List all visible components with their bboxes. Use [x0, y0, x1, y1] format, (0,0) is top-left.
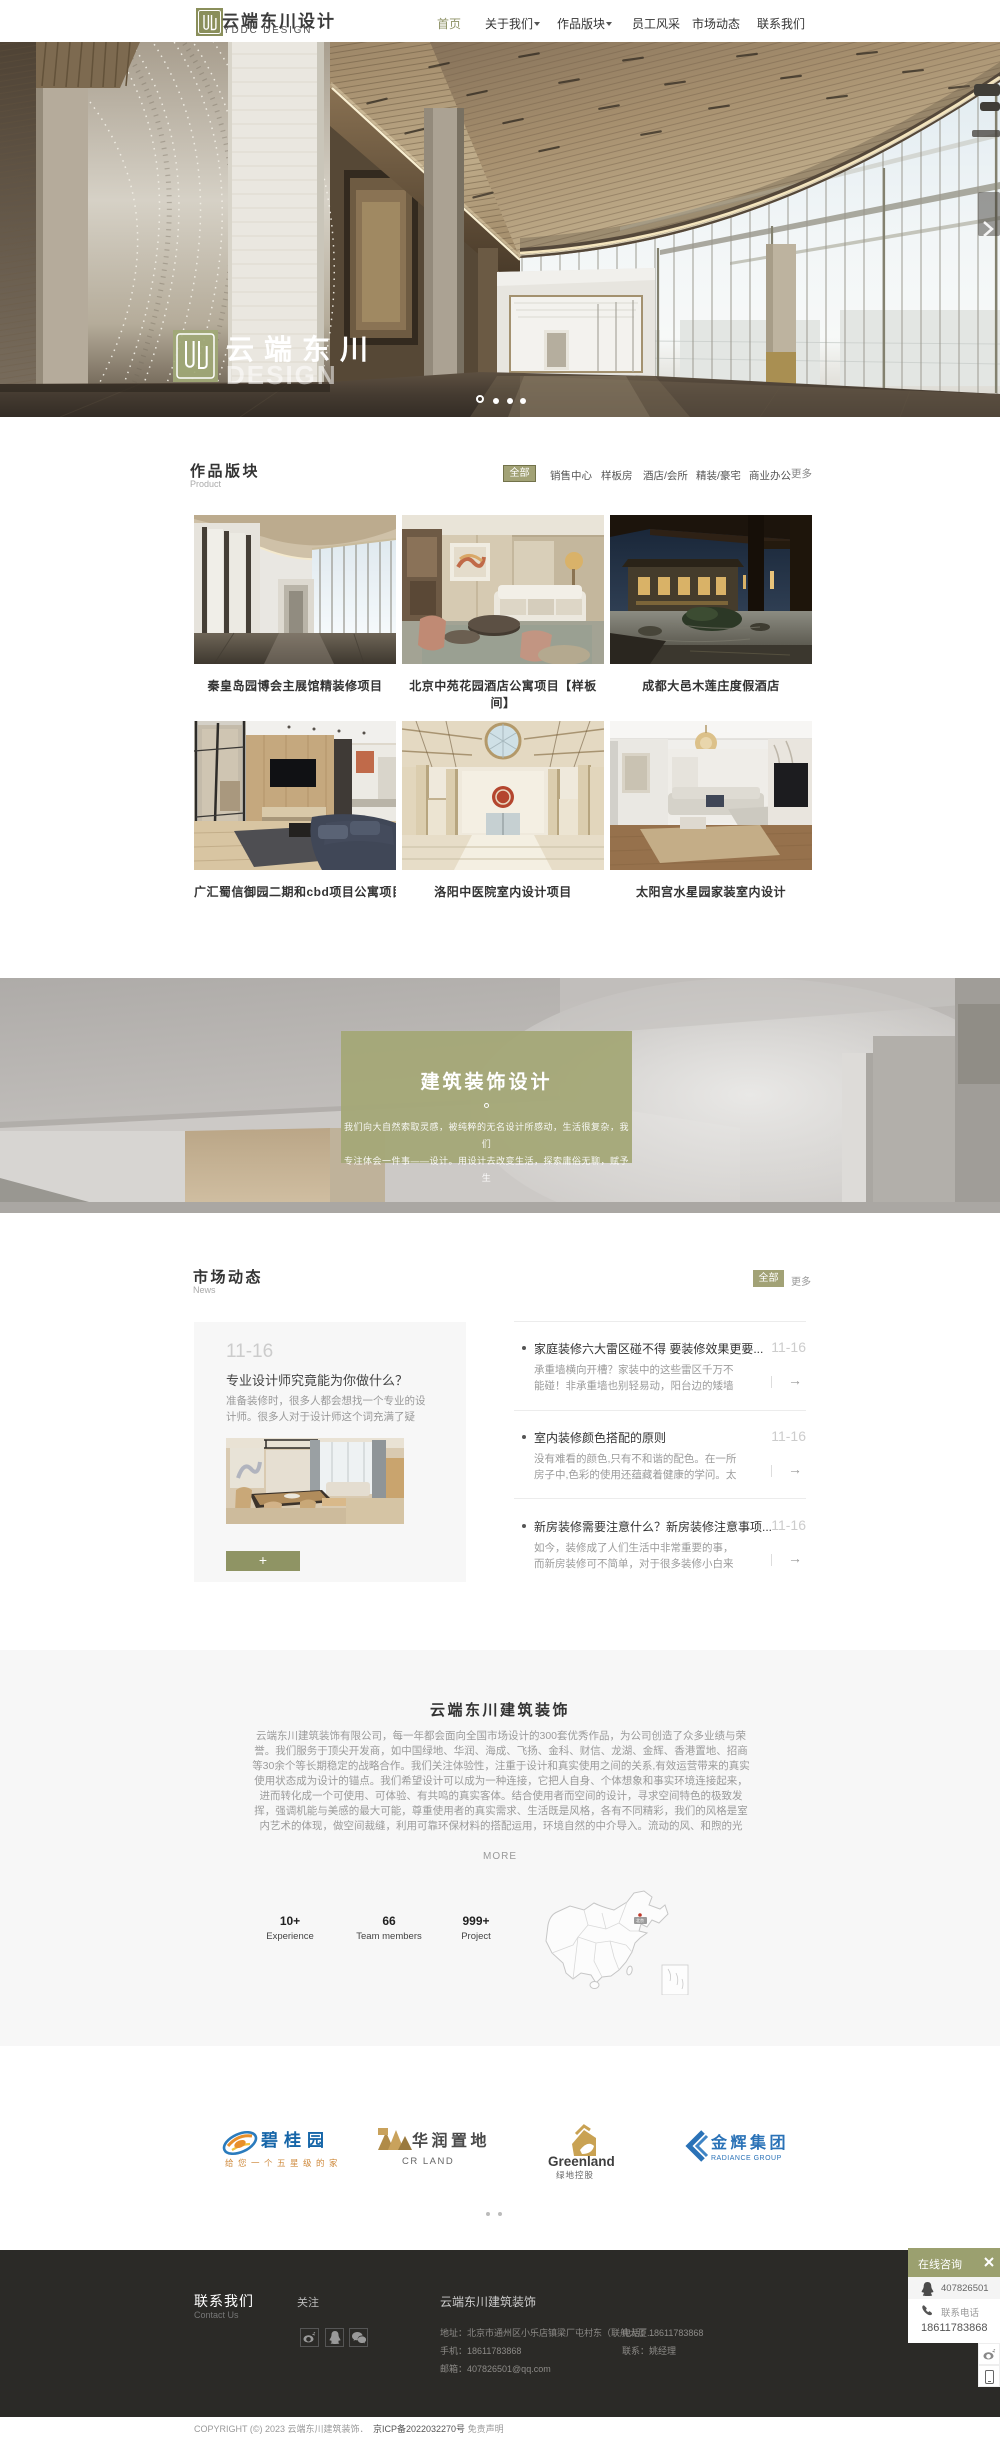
svg-text:绿地控股: 绿地控股: [556, 2170, 594, 2180]
svg-text:北京: 北京: [636, 1917, 644, 1923]
svg-text:金辉集团: 金辉集团: [710, 2133, 789, 2152]
svg-text:Greenland: Greenland: [548, 2154, 615, 2169]
svg-text:RADIANCE GROUP: RADIANCE GROUP: [711, 2155, 782, 2162]
svg-text:碧桂园: 碧桂园: [260, 2130, 330, 2150]
svg-text:给您一个五星级的家: 给您一个五星级的家: [225, 2158, 342, 2168]
svg-text:CR LAND: CR LAND: [402, 2156, 454, 2167]
svg-text:华润置地: 华润置地: [412, 2131, 490, 2150]
